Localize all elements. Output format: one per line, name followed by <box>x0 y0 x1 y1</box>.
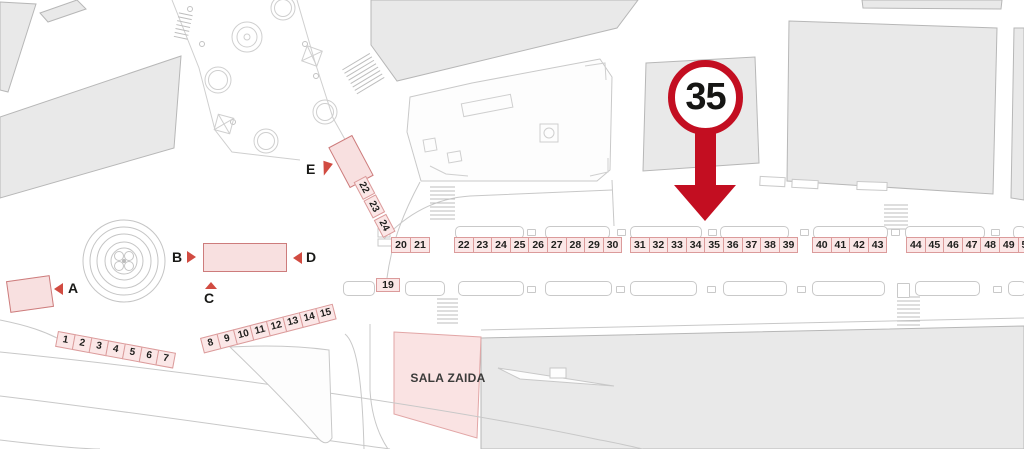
gate-c-pointer-icon <box>205 282 217 289</box>
plaza-island <box>407 59 612 181</box>
area-rect-a <box>6 275 54 313</box>
planter-stand <box>343 281 375 296</box>
planter-stand <box>405 281 445 296</box>
stall-39[interactable]: 39 <box>779 237 799 253</box>
planter-stand <box>1008 281 1024 296</box>
gate-a-label[interactable]: A <box>68 280 78 296</box>
area-rect-bd <box>203 243 287 272</box>
planter-stand <box>812 281 885 296</box>
park-layer <box>172 0 352 160</box>
planter-stand <box>630 281 697 296</box>
stall-row-22-30: 222324252627282930 <box>454 237 622 253</box>
planter-connector <box>797 286 806 293</box>
stall-row-40-43: 40414243 <box>812 237 887 253</box>
planter-stand <box>458 281 524 296</box>
stall-24[interactable]: 24 <box>491 237 511 253</box>
stall-26[interactable]: 26 <box>528 237 548 253</box>
fountain <box>83 220 165 302</box>
sala-zaida-label: SALA ZAIDA <box>404 371 492 385</box>
gate-b-label[interactable]: B <box>172 249 182 265</box>
kiosk-box <box>897 283 910 298</box>
stall-7[interactable]: 7 <box>155 350 176 369</box>
stall-46[interactable]: 46 <box>943 237 963 253</box>
stall-28[interactable]: 28 <box>566 237 586 253</box>
gate-b-pointer-icon <box>187 251 196 263</box>
stall-23[interactable]: 23 <box>473 237 493 253</box>
stall-49[interactable]: 49 <box>999 237 1019 253</box>
planter-connector <box>527 229 536 236</box>
stall-row-20-21: 2021 <box>391 237 430 253</box>
stall-25[interactable]: 25 <box>510 237 530 253</box>
stall-44[interactable]: 44 <box>906 237 926 253</box>
marker-stem <box>695 133 716 187</box>
planter-connector <box>707 286 716 293</box>
gate-e-label[interactable]: E <box>306 161 315 177</box>
stall-21[interactable]: 21 <box>410 237 430 253</box>
planter-connector <box>991 229 1000 236</box>
stall-row-31-39: 313233343536373839 <box>630 237 798 253</box>
stall-50[interactable]: 50 <box>1018 237 1024 253</box>
stall-32[interactable]: 32 <box>649 237 669 253</box>
planter-connector <box>527 286 536 293</box>
stall-34[interactable]: 34 <box>686 237 706 253</box>
stall-40[interactable]: 40 <box>812 237 832 253</box>
stall-35[interactable]: 35 <box>704 237 724 253</box>
planter-stand <box>723 281 787 296</box>
planter-stand <box>545 281 612 296</box>
stall-48[interactable]: 48 <box>980 237 1000 253</box>
planter-connector <box>800 229 809 236</box>
stall-27[interactable]: 27 <box>547 237 567 253</box>
stall-29[interactable]: 29 <box>584 237 604 253</box>
marker-value: 35 <box>685 76 725 119</box>
stall-45[interactable]: 45 <box>925 237 945 253</box>
stall-42[interactable]: 42 <box>849 237 869 253</box>
stall-22[interactable]: 22 <box>454 237 474 253</box>
planter-connector <box>708 229 717 236</box>
stall-37[interactable]: 37 <box>742 237 762 253</box>
stall-47[interactable]: 47 <box>962 237 982 253</box>
gate-d-pointer-icon <box>293 252 302 264</box>
market-map: 1234567 89101112131415 222324 19 2021 22… <box>0 0 1024 449</box>
stall-row-44-50: 44454647484950 <box>906 237 1024 253</box>
gate-a-pointer-icon <box>54 283 63 295</box>
stall-31[interactable]: 31 <box>630 237 650 253</box>
marker-arrowhead-icon <box>674 185 736 221</box>
stall-19[interactable]: 19 <box>376 278 400 292</box>
planter-connector <box>891 229 900 236</box>
stall-41[interactable]: 41 <box>831 237 851 253</box>
map-base-svg <box>0 0 1024 449</box>
stall-43[interactable]: 43 <box>868 237 888 253</box>
stall-38[interactable]: 38 <box>760 237 780 253</box>
marker-circle: 35 <box>668 60 743 135</box>
stall-20[interactable]: 20 <box>391 237 411 253</box>
planter-connector <box>617 229 626 236</box>
stall-36[interactable]: 36 <box>723 237 743 253</box>
sala-zaida-building <box>394 332 481 438</box>
planter-connector <box>993 286 1002 293</box>
planter-stand <box>915 281 980 296</box>
stall-30[interactable]: 30 <box>603 237 623 253</box>
gate-d-label[interactable]: D <box>306 249 316 265</box>
buildings-layer <box>0 0 1024 449</box>
planter-connector <box>616 286 625 293</box>
stall-33[interactable]: 33 <box>667 237 687 253</box>
gate-c-label[interactable]: C <box>204 290 214 306</box>
